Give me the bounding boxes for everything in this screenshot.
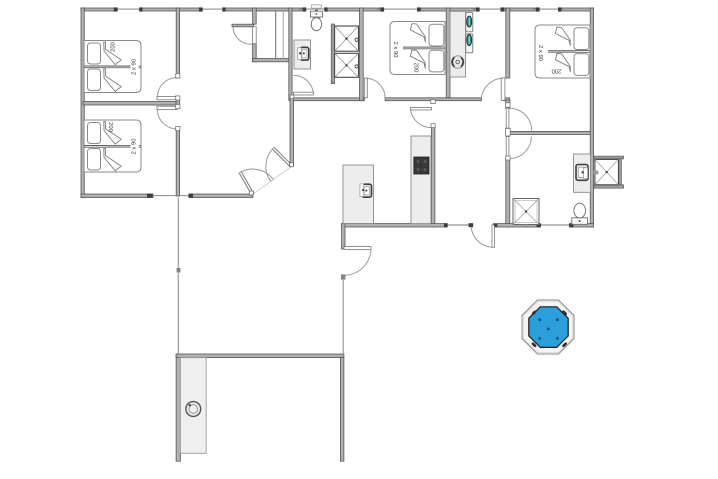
svg-text:200: 200 — [107, 122, 114, 133]
svg-text:200: 200 — [110, 41, 117, 52]
svg-text:200: 200 — [551, 68, 562, 75]
svg-text:200: 200 — [413, 63, 420, 74]
svg-text:2 x 90: 2 x 90 — [537, 45, 544, 62]
svg-text:2 x 90: 2 x 90 — [131, 58, 138, 75]
svg-text:2 x 90: 2 x 90 — [131, 138, 138, 155]
svg-text:2 x 90: 2 x 90 — [392, 41, 399, 58]
